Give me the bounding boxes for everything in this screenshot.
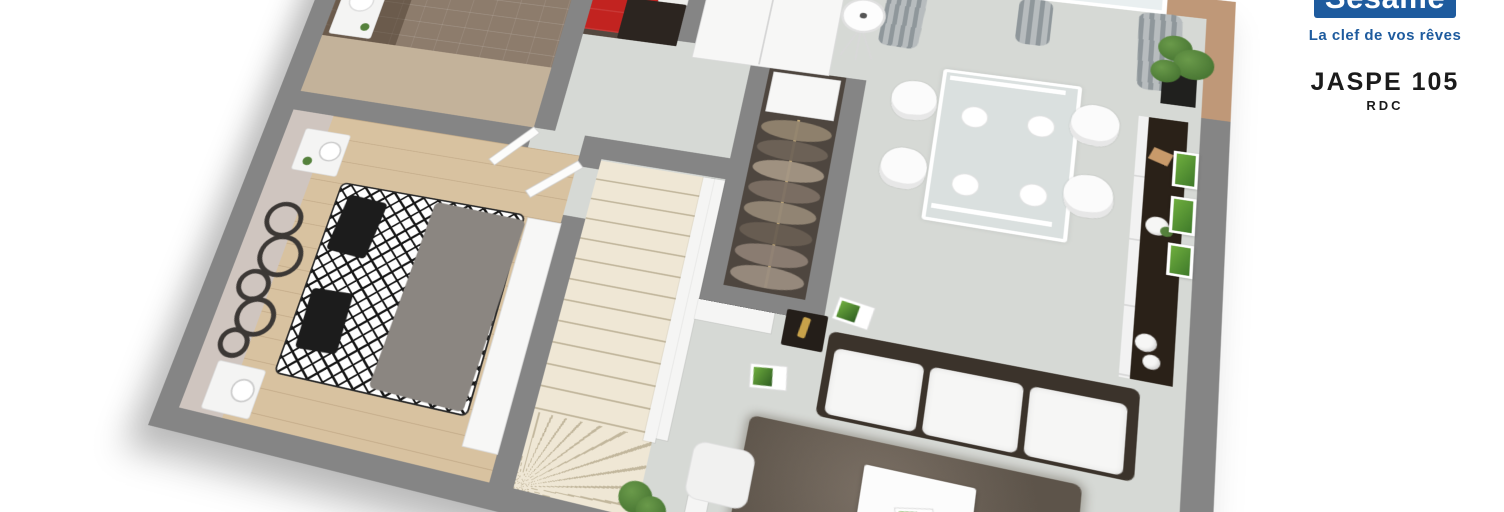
brand-block: Sésame La clef de vos rêves JASPE 105 RD… [1285, 0, 1485, 113]
table-crossbar [931, 203, 1052, 227]
wall-frame-green [1166, 242, 1194, 279]
deco-sphere [1134, 332, 1157, 354]
curtain [1014, 0, 1054, 47]
wall-frame-green [1169, 196, 1197, 237]
deco-card [1148, 147, 1174, 166]
kitchen-island [617, 0, 687, 46]
bed-pillow [295, 288, 354, 355]
brand-tagline: La clef de vos rêves [1285, 27, 1485, 44]
wall-frame-green [1172, 151, 1200, 190]
floor-plan-3d [148, 0, 1236, 512]
sofa-cushion [921, 366, 1024, 453]
dining-chair [891, 80, 937, 121]
logo-text: Sésame [1325, 0, 1445, 18]
plan-floor-label: RDC [1285, 98, 1485, 113]
magazine [750, 364, 787, 391]
sofa-cushion [1023, 386, 1128, 476]
bed-pillow [326, 194, 388, 259]
plan-model-title: JASPE 105 [1285, 68, 1485, 97]
page: Sésame La clef de vos rêves JASPE 105 RD… [0, 0, 1504, 512]
dining-table [921, 69, 1082, 243]
sesame-logo: Sésame [1314, 0, 1456, 18]
magazine [895, 508, 934, 512]
sofa-cushion [824, 348, 925, 433]
deco-sphere [1142, 353, 1161, 371]
